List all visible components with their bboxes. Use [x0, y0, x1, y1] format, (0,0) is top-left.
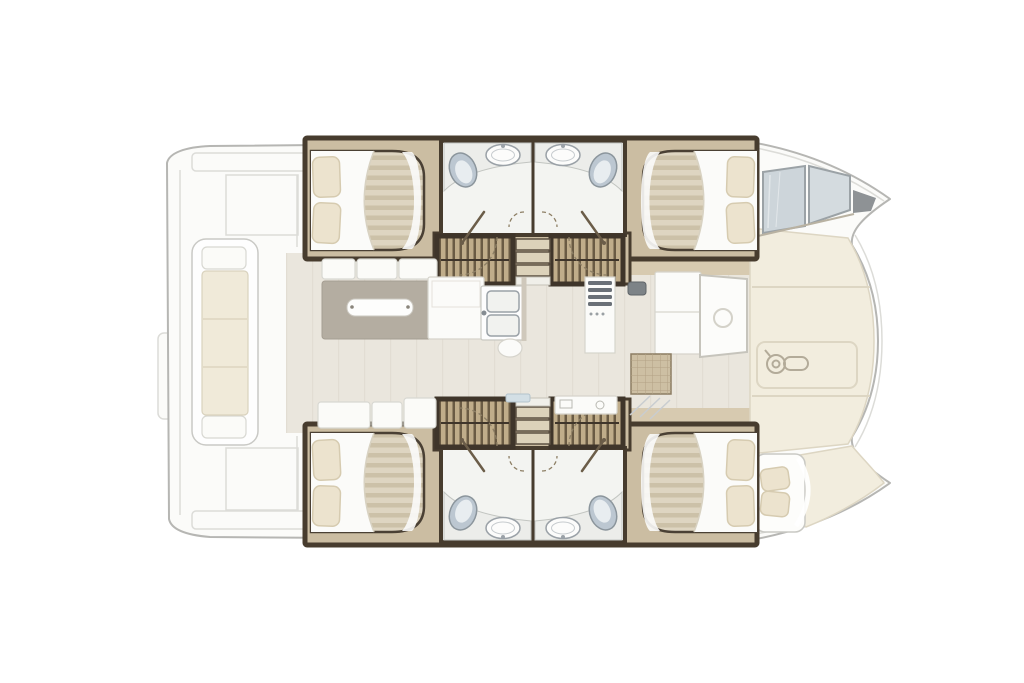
settee-cushion	[404, 398, 436, 428]
catamaran-floor-plan-canvas	[0, 0, 1024, 683]
settee-cushion	[322, 259, 355, 279]
bow-berth-pillow	[760, 491, 790, 518]
catamaran-floor-plan	[0, 0, 1024, 683]
settee-cushion	[372, 402, 402, 428]
forward-door	[700, 275, 747, 357]
pillow	[726, 202, 755, 243]
pillow	[312, 157, 340, 198]
galley-cabinets	[655, 272, 701, 354]
forward-cabin-bed	[641, 151, 757, 250]
cockpit-bench	[192, 239, 258, 445]
bench-cushions	[202, 271, 248, 415]
center-steps	[516, 239, 550, 285]
galley-stool	[498, 339, 522, 357]
stove-icon	[585, 277, 615, 353]
kitchenette-accent	[506, 394, 530, 402]
galley-island	[428, 277, 484, 339]
sink-icon	[546, 144, 580, 166]
aft-cabin-bed	[311, 151, 424, 250]
bow-berth-pillow	[760, 466, 791, 492]
galley-appliance	[628, 282, 646, 295]
galley-sink	[481, 286, 525, 340]
dinette-table	[322, 281, 432, 339]
pillow	[726, 157, 754, 198]
settee-cushion	[357, 259, 397, 279]
sink-icon	[486, 144, 520, 166]
settee-cushion	[399, 259, 437, 279]
table-tray	[347, 299, 413, 316]
pillow	[312, 202, 341, 243]
foredeck	[750, 228, 874, 454]
settee-cushion	[318, 402, 370, 428]
